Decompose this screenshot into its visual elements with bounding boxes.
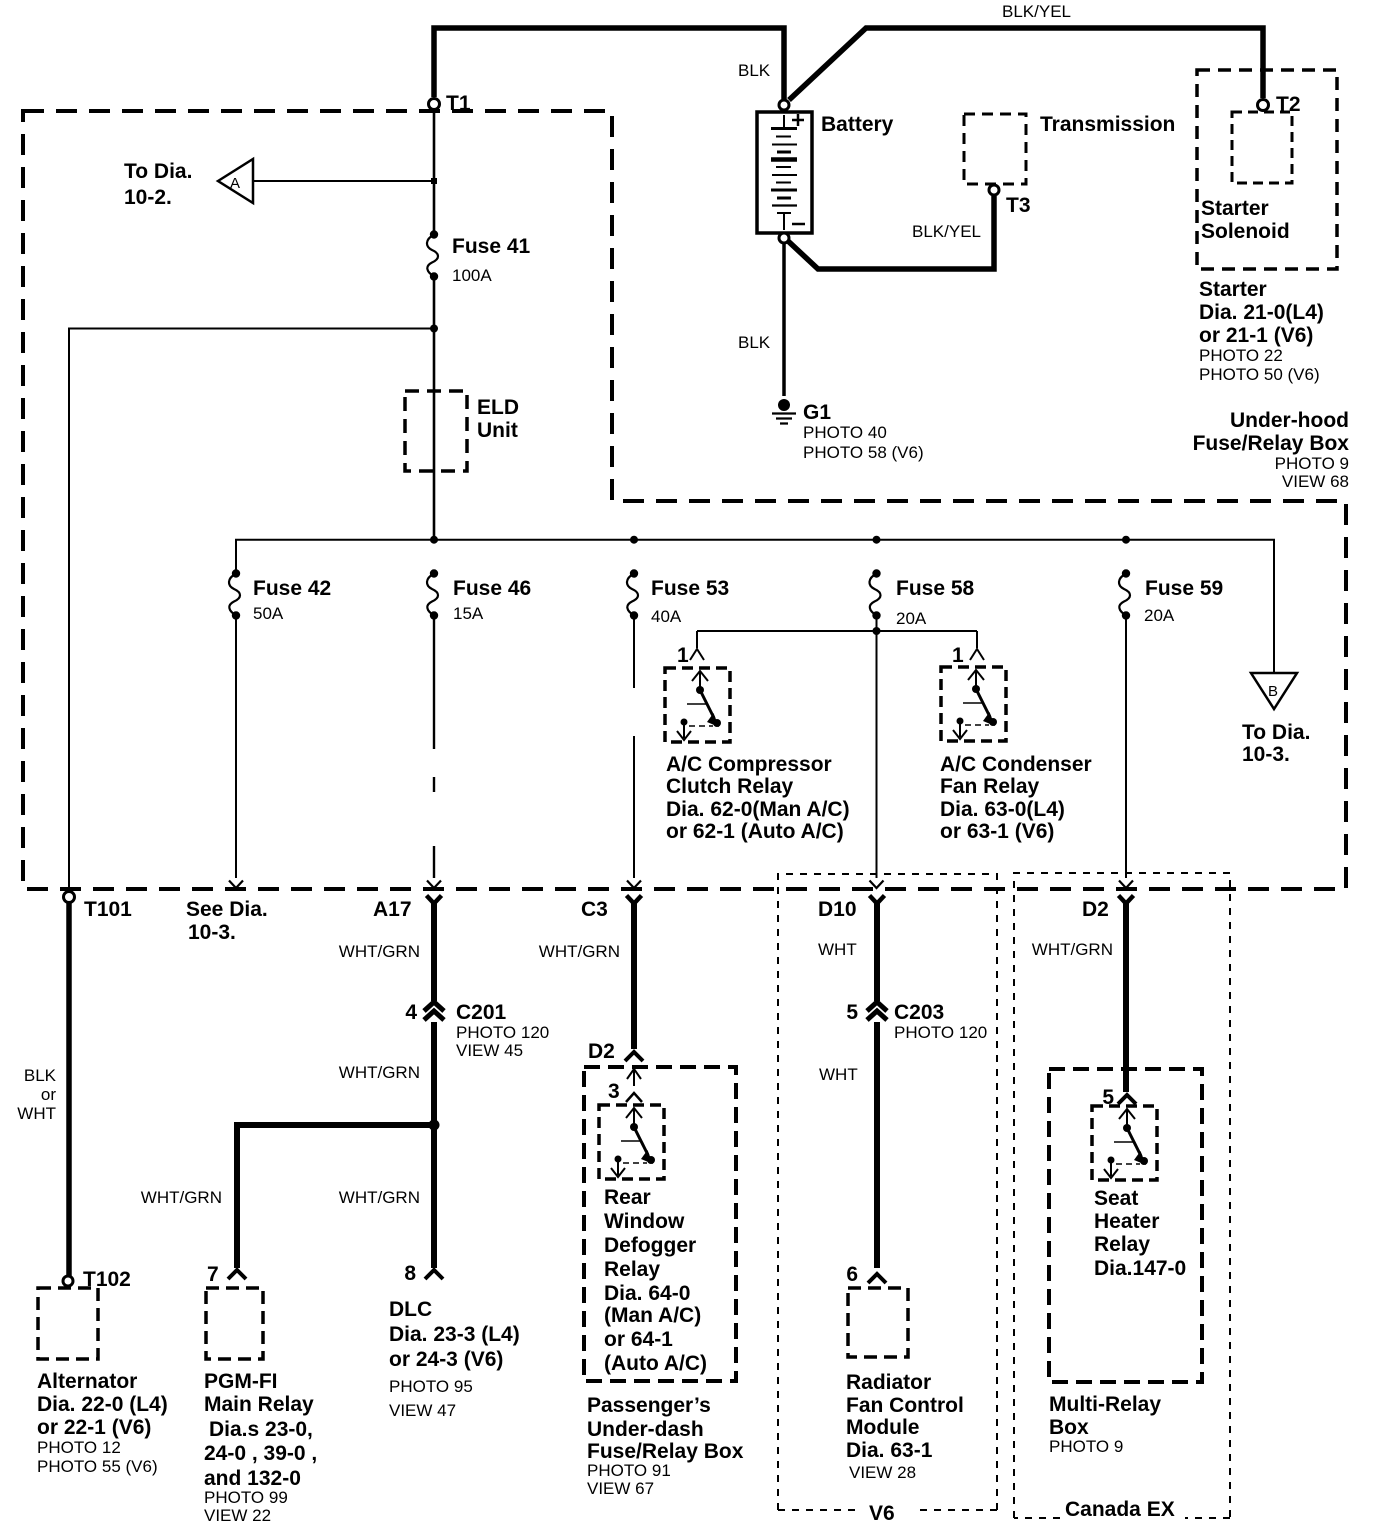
- svg-text:10-3.: 10-3.: [1242, 743, 1290, 766]
- svg-text:24-0 , 39-0 ,: 24-0 , 39-0 ,: [204, 1442, 317, 1465]
- svg-text:40A: 40A: [651, 607, 682, 626]
- svg-text:PHOTO 120: PHOTO 120: [894, 1023, 987, 1042]
- svg-text:Dia. 62-0(Man A/C): Dia. 62-0(Man A/C): [666, 798, 850, 821]
- svg-text:3: 3: [608, 1080, 620, 1103]
- svg-text:or: or: [41, 1085, 56, 1104]
- svg-text:Fuse 58: Fuse 58: [896, 577, 975, 600]
- svg-text:Dia. 64-0: Dia. 64-0: [604, 1282, 690, 1305]
- svg-text:20A: 20A: [896, 609, 927, 628]
- svg-text:C203: C203: [894, 1001, 944, 1024]
- svg-text:Canada EX: Canada EX: [1065, 1498, 1175, 1521]
- svg-text:BLK: BLK: [738, 61, 771, 80]
- svg-text:PHOTO 22: PHOTO 22: [1199, 346, 1283, 365]
- svg-text:or 22-1 (V6): or 22-1 (V6): [37, 1416, 151, 1439]
- svg-text:Main Relay: Main Relay: [204, 1393, 314, 1416]
- svg-text:PHOTO 12: PHOTO 12: [37, 1438, 121, 1457]
- svg-text:Box: Box: [1049, 1416, 1089, 1439]
- svg-text:Rear: Rear: [604, 1186, 651, 1209]
- svg-text:or 24-3 (V6): or 24-3 (V6): [389, 1348, 503, 1371]
- svg-text:PHOTO 9: PHOTO 9: [1049, 1437, 1123, 1456]
- svg-text:WHT: WHT: [819, 1065, 858, 1084]
- svg-text:8: 8: [404, 1262, 416, 1285]
- svg-text:Under-hood: Under-hood: [1230, 409, 1349, 432]
- svg-text:BLK/YEL: BLK/YEL: [912, 222, 981, 241]
- svg-text:Fuse/Relay Box: Fuse/Relay Box: [587, 1440, 744, 1463]
- svg-text:Relay: Relay: [604, 1258, 660, 1281]
- svg-text:PHOTO 120: PHOTO 120: [456, 1023, 549, 1042]
- svg-text:WHT/GRN: WHT/GRN: [339, 1188, 420, 1207]
- svg-text:BLK: BLK: [738, 333, 771, 352]
- svg-text:WHT: WHT: [818, 940, 857, 959]
- svg-text:PHOTO 40: PHOTO 40: [803, 423, 887, 442]
- svg-text:Fuse 41: Fuse 41: [452, 235, 531, 258]
- svg-text:Defogger: Defogger: [604, 1234, 696, 1257]
- svg-text:D10: D10: [818, 898, 857, 921]
- svg-text:Fuse/Relay Box: Fuse/Relay Box: [1193, 432, 1350, 455]
- svg-text:Dia.s 23-0,: Dia.s 23-0,: [209, 1418, 313, 1441]
- svg-text:WHT/GRN: WHT/GRN: [339, 1063, 420, 1082]
- svg-text:Multi-Relay: Multi-Relay: [1049, 1393, 1161, 1416]
- svg-text:D2: D2: [1082, 898, 1109, 921]
- svg-text:BLK/YEL: BLK/YEL: [1002, 2, 1071, 21]
- svg-text:Passenger’s: Passenger’s: [587, 1394, 711, 1417]
- svg-text:To Dia.: To Dia.: [124, 160, 192, 183]
- svg-text:PHOTO 99: PHOTO 99: [204, 1488, 288, 1507]
- svg-text:D2: D2: [588, 1040, 615, 1063]
- svg-text:4: 4: [405, 1001, 417, 1024]
- svg-text:Dia. 63-0(L4): Dia. 63-0(L4): [940, 798, 1065, 821]
- svg-text:WHT/GRN: WHT/GRN: [339, 942, 420, 961]
- svg-text:PHOTO 95: PHOTO 95: [389, 1377, 473, 1396]
- svg-text:A/C Compressor: A/C Compressor: [666, 753, 832, 776]
- svg-text:Fuse 42: Fuse 42: [253, 577, 331, 600]
- svg-text:Seat: Seat: [1094, 1187, 1138, 1210]
- svg-text:Radiator: Radiator: [846, 1371, 931, 1394]
- svg-text:Dia. 63-1: Dia. 63-1: [846, 1439, 933, 1462]
- svg-text:Dia. 22-0 (L4): Dia. 22-0 (L4): [37, 1393, 168, 1416]
- svg-text:Battery: Battery: [821, 113, 894, 136]
- svg-text:WHT/GRN: WHT/GRN: [1032, 940, 1113, 959]
- svg-text:Fuse 59: Fuse 59: [1145, 577, 1223, 600]
- svg-text:A/C Condenser: A/C Condenser: [940, 753, 1092, 776]
- svg-text:BLK: BLK: [24, 1066, 57, 1085]
- svg-text:10-2.: 10-2.: [124, 186, 172, 209]
- svg-text:1: 1: [677, 644, 689, 667]
- svg-text:Solenoid: Solenoid: [1201, 220, 1290, 243]
- svg-text:or 62-1 (Auto A/C): or 62-1 (Auto A/C): [666, 820, 844, 843]
- svg-text:(Auto A/C): (Auto A/C): [604, 1352, 707, 1375]
- svg-text:G1: G1: [803, 401, 831, 424]
- svg-text:5: 5: [846, 1001, 858, 1024]
- svg-text:or 64-1: or 64-1: [604, 1328, 673, 1351]
- svg-text:and 132-0: and 132-0: [204, 1467, 301, 1490]
- svg-text:B: B: [1268, 683, 1278, 700]
- svg-text:PHOTO 55 (V6): PHOTO 55 (V6): [37, 1457, 158, 1476]
- svg-text:T1: T1: [446, 92, 471, 115]
- svg-text:(Man A/C): (Man A/C): [604, 1304, 701, 1327]
- svg-text:Relay: Relay: [1094, 1233, 1150, 1256]
- svg-text:PHOTO 50 (V6): PHOTO 50 (V6): [1199, 365, 1320, 384]
- svg-text:10-3.: 10-3.: [188, 921, 236, 944]
- svg-text:50A: 50A: [253, 604, 284, 623]
- svg-text:Fuse 46: Fuse 46: [453, 577, 531, 600]
- svg-text:Fan Relay: Fan Relay: [940, 775, 1040, 798]
- svg-text:7: 7: [207, 1263, 219, 1286]
- svg-text:A: A: [230, 175, 240, 192]
- svg-text:To Dia.: To Dia.: [1242, 721, 1310, 744]
- svg-text:Under-dash: Under-dash: [587, 1418, 704, 1441]
- svg-text:Alternator: Alternator: [37, 1370, 137, 1393]
- svg-text:See Dia.: See Dia.: [186, 898, 268, 921]
- svg-text:Dia. 21-0(L4): Dia. 21-0(L4): [1199, 301, 1324, 324]
- svg-text:Module: Module: [846, 1416, 920, 1439]
- svg-text:Clutch Relay: Clutch Relay: [666, 775, 794, 798]
- svg-text:1: 1: [952, 644, 964, 667]
- svg-text:Fan Control: Fan Control: [846, 1394, 964, 1417]
- svg-text:VIEW 45: VIEW 45: [456, 1041, 523, 1060]
- svg-text:15A: 15A: [453, 604, 484, 623]
- svg-text:WHT/GRN: WHT/GRN: [141, 1188, 222, 1207]
- svg-text:PHOTO 9: PHOTO 9: [1275, 454, 1349, 473]
- svg-text:T101: T101: [84, 898, 132, 921]
- svg-text:Unit: Unit: [477, 419, 518, 442]
- svg-text:VIEW 68: VIEW 68: [1282, 472, 1349, 491]
- svg-text:WHT/GRN: WHT/GRN: [539, 942, 620, 961]
- svg-text:PHOTO 58 (V6): PHOTO 58 (V6): [803, 443, 924, 462]
- svg-text:or 21-1 (V6): or 21-1 (V6): [1199, 324, 1313, 347]
- svg-text:Transmission: Transmission: [1040, 113, 1175, 136]
- svg-text:PHOTO 91: PHOTO 91: [587, 1461, 671, 1480]
- svg-text:100A: 100A: [452, 266, 492, 285]
- svg-text:Starter: Starter: [1199, 278, 1267, 301]
- svg-text:VIEW 47: VIEW 47: [389, 1401, 456, 1420]
- svg-text:T3: T3: [1006, 194, 1031, 217]
- svg-text:VIEW 67: VIEW 67: [587, 1479, 654, 1498]
- svg-text:T2: T2: [1276, 93, 1301, 116]
- svg-text:or 63-1 (V6): or 63-1 (V6): [940, 820, 1054, 843]
- svg-text:A17: A17: [373, 898, 412, 921]
- svg-text:Dia.147-0: Dia.147-0: [1094, 1257, 1186, 1280]
- svg-text:Starter: Starter: [1201, 197, 1269, 220]
- svg-text:6: 6: [846, 1263, 858, 1286]
- svg-text:DLC: DLC: [389, 1298, 432, 1321]
- svg-text:Heater: Heater: [1094, 1210, 1159, 1233]
- svg-text:20A: 20A: [1144, 606, 1175, 625]
- svg-text:ELD: ELD: [477, 396, 519, 419]
- svg-text:C201: C201: [456, 1001, 507, 1024]
- svg-text:Fuse 53: Fuse 53: [651, 577, 729, 600]
- svg-text:VIEW 28: VIEW 28: [849, 1463, 916, 1482]
- svg-text:WHT: WHT: [17, 1104, 56, 1123]
- svg-text:VIEW 22: VIEW 22: [204, 1506, 271, 1525]
- svg-text:PGM-FI: PGM-FI: [204, 1370, 278, 1393]
- svg-text:Dia. 23-3 (L4): Dia. 23-3 (L4): [389, 1323, 520, 1346]
- svg-text:C3: C3: [581, 898, 608, 921]
- svg-text:V6: V6: [869, 1502, 895, 1525]
- svg-text:Window: Window: [604, 1210, 685, 1233]
